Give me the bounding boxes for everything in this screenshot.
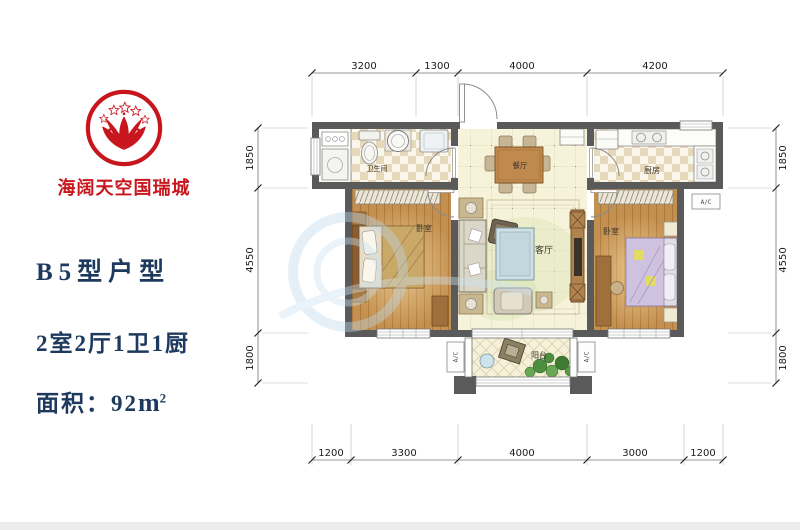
- area-superscript: 2: [160, 390, 169, 405]
- brand-block: 海阔天空国瑞城: [34, 86, 214, 200]
- window: [608, 329, 670, 338]
- logo-emblem: [82, 86, 166, 170]
- area-text: 面积：92m2: [36, 384, 190, 418]
- area-value: 面积：92: [36, 391, 138, 416]
- round-basin: [385, 130, 411, 152]
- dim-value: 4000: [509, 448, 534, 459]
- dim-top: 3200 1300 4000 4200: [351, 61, 667, 72]
- nightstand: [664, 222, 679, 236]
- unit-info: B5型户型 2室2厅1卫1厨 面积：92m2: [36, 252, 190, 418]
- window: [377, 329, 430, 338]
- dim-value: 1300: [424, 61, 449, 72]
- window: [311, 138, 320, 175]
- dim-value: 1800: [245, 345, 256, 370]
- floorplan-drawing: A/C A/C A/C 卫生间 餐厅 厨房 卧室 客厅 卧室 阳台: [240, 20, 800, 490]
- brand-name: 海阔天空国瑞城: [34, 174, 214, 200]
- cushion: [468, 263, 481, 276]
- unit-type-title: B5型户型: [36, 252, 190, 288]
- label-bathroom: 卫生间: [367, 164, 388, 173]
- dim-value: 1200: [690, 448, 715, 459]
- dim-right: 1850 4550 1800: [778, 145, 789, 370]
- dim-value: 4550: [778, 247, 789, 272]
- floorplan-page: 海阔天空国瑞城 B5型户型 2室2厅1卫1厨 面积：92m2: [0, 0, 800, 530]
- dim-value: 4550: [245, 247, 256, 272]
- desk-right: [596, 256, 611, 326]
- balcony-stool: [480, 354, 494, 368]
- lotus-icon: [102, 112, 146, 149]
- pillow: [664, 244, 675, 270]
- dim-bottom: 1200 3300 4000 3000 1200: [318, 448, 715, 459]
- dim-left: 1850 4550 1800: [245, 145, 256, 370]
- label-kitchen: 厨房: [644, 165, 660, 175]
- dim-value: 4200: [642, 61, 667, 72]
- washing-machine: [322, 149, 348, 180]
- area-unit: m: [138, 388, 160, 417]
- dim-value: 3000: [622, 448, 647, 459]
- ac-label: A/C: [701, 199, 712, 206]
- balcony-post-right: [570, 376, 592, 394]
- page-bottom-edge: [0, 522, 800, 530]
- window: [680, 121, 712, 130]
- pillow: [664, 274, 675, 300]
- stove: [632, 131, 666, 144]
- label-living: 客厅: [535, 244, 553, 256]
- label-bedroom-left: 卧室: [416, 223, 432, 233]
- room-configuration: 2室2厅1卫1厨: [36, 324, 190, 358]
- dim-value: 1850: [245, 145, 256, 170]
- dim-value: 4000: [509, 61, 534, 72]
- desk-chair: [611, 282, 624, 295]
- label-dining: 餐厅: [513, 161, 528, 170]
- label-balcony: 阳台: [531, 350, 547, 360]
- dim-value: 1800: [778, 345, 789, 370]
- label-bedroom-right: 卧室: [603, 226, 619, 236]
- balcony-post-left: [454, 376, 476, 394]
- tv: [574, 238, 582, 276]
- dim-value: 3200: [351, 61, 376, 72]
- dim-value: 1200: [318, 448, 343, 459]
- nightstand: [664, 308, 679, 322]
- blanket: [626, 238, 664, 306]
- wardrobe-left: [355, 190, 440, 204]
- entrance-door: [460, 84, 498, 122]
- dresser-left: [432, 296, 448, 326]
- ac-label: A/C: [453, 351, 460, 362]
- balcony-door-window: [472, 329, 573, 338]
- fridge: [596, 130, 618, 149]
- dim-value: 3300: [391, 448, 416, 459]
- ac-label: A/C: [584, 351, 591, 362]
- dim-value: 1850: [778, 145, 789, 170]
